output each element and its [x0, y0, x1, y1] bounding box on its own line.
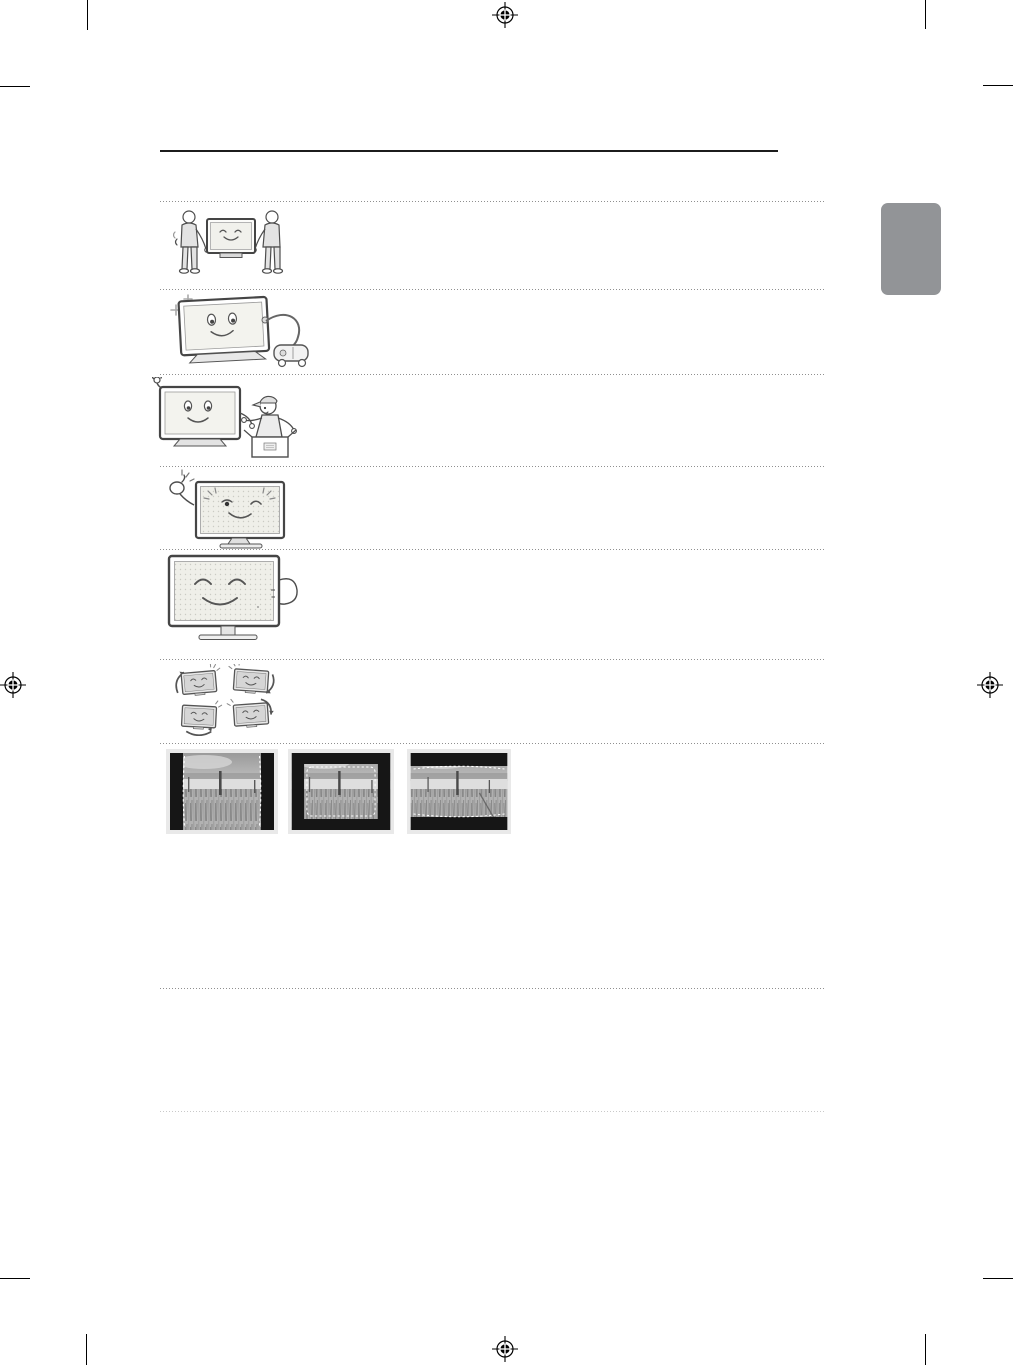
manual-page: [0, 0, 1013, 1365]
dotted-separator: [160, 374, 825, 375]
windowbox-example-image: [288, 749, 394, 834]
crop-mark-bottom-right-vertical: [925, 1334, 926, 1365]
crop-mark-top-right-horizontal: [983, 85, 1013, 86]
registration-mark-left-icon: [0, 672, 26, 698]
dotted-separator: [160, 549, 825, 550]
crop-mark-bottom-right-horizontal: [983, 1278, 1013, 1279]
chapter-side-tab: [881, 203, 941, 295]
winking-tv-illustration-icon: [166, 469, 291, 549]
dotted-separator: [160, 466, 825, 467]
hand-touching-tv-illustration-icon: [163, 552, 298, 642]
dotted-separator: [160, 289, 825, 290]
registration-mark-top-icon: [492, 2, 518, 28]
service-technician-illustration-icon: [152, 377, 302, 462]
registration-mark-bottom-icon: [492, 1336, 518, 1362]
dotted-separator-light: [160, 1111, 825, 1112]
pillarbox-example-image: [166, 749, 278, 834]
crop-mark-top-right-vertical: [925, 0, 926, 29]
registration-mark-right-icon: [977, 672, 1003, 698]
letterbox-example-image: [407, 749, 511, 834]
dotted-separator: [160, 659, 825, 660]
crop-mark-bottom-left-vertical: [86, 1334, 87, 1365]
carrying-tv-illustration-icon: [173, 205, 288, 285]
crop-mark-bottom-left-horizontal: [0, 1278, 30, 1279]
header-rule: [160, 150, 778, 152]
dotted-separator: [160, 201, 825, 202]
crop-mark-top-left-horizontal: [0, 86, 30, 87]
vacuum-cleaning-tv-illustration-icon: [166, 291, 316, 373]
dotted-separator: [160, 988, 825, 989]
crop-mark-top-left-vertical: [87, 0, 88, 30]
rotating-tvs-illustration-icon: [172, 664, 282, 736]
dotted-separator: [160, 743, 825, 744]
